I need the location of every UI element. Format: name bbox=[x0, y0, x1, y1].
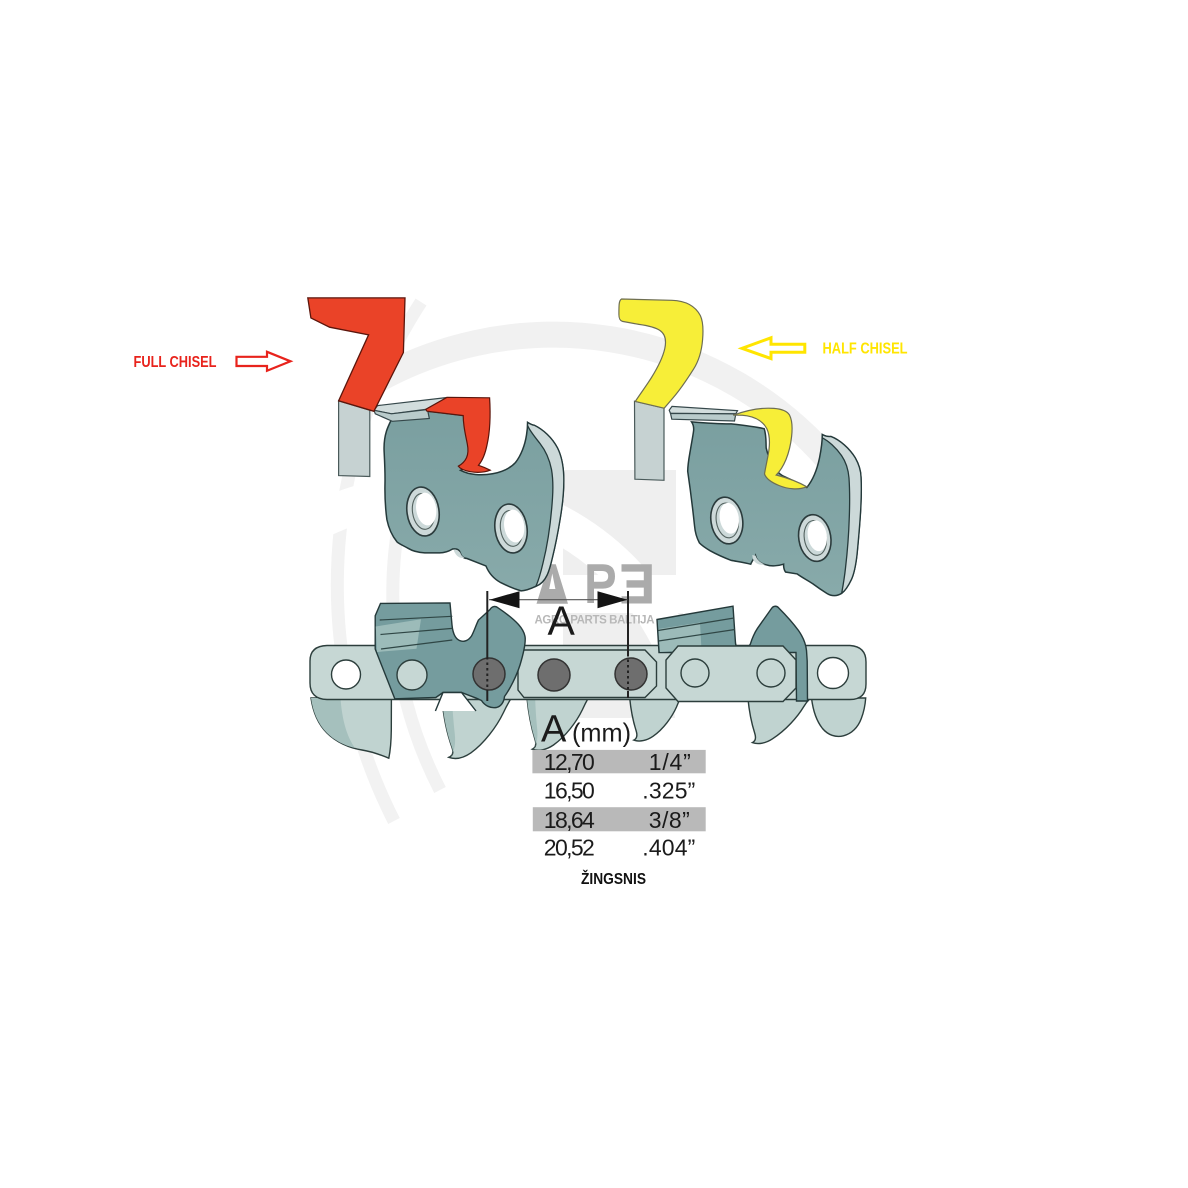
svg-text:18,64: 18,64 bbox=[544, 807, 595, 833]
svg-text:(mm): (mm) bbox=[572, 718, 631, 748]
svg-text:A: A bbox=[548, 598, 576, 644]
svg-text:.404”: .404” bbox=[642, 834, 695, 860]
svg-text:12,70: 12,70 bbox=[544, 749, 595, 775]
svg-text:3/8”: 3/8” bbox=[649, 807, 690, 833]
svg-text:A: A bbox=[541, 709, 567, 751]
svg-text:HALF CHISEL: HALF CHISEL bbox=[823, 341, 908, 358]
svg-text:ŽINGSNIS: ŽINGSNIS bbox=[581, 869, 646, 888]
svg-text:.325”: .325” bbox=[642, 778, 695, 804]
svg-text:FULL CHISEL: FULL CHISEL bbox=[134, 354, 217, 371]
svg-text:16,50: 16,50 bbox=[544, 778, 595, 804]
svg-text:20,52: 20,52 bbox=[544, 834, 595, 860]
svg-text:1/4”: 1/4” bbox=[649, 749, 691, 775]
